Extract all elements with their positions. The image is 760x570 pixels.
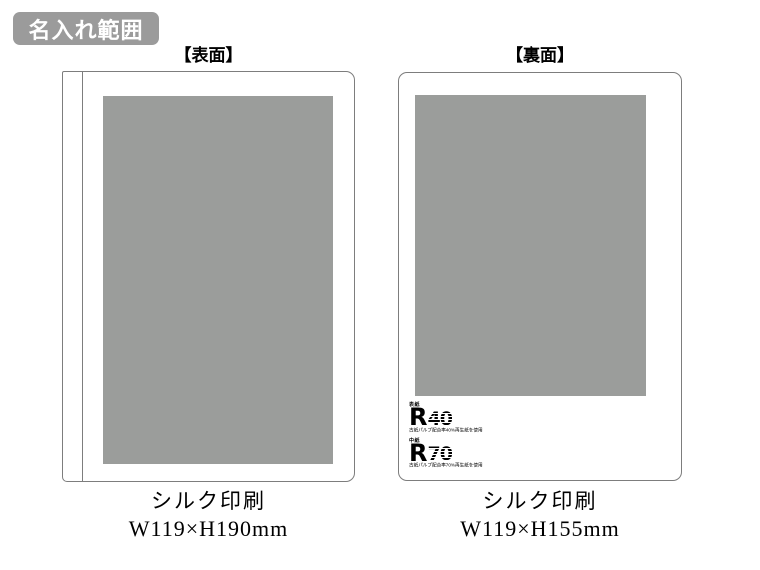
back-print-size: W119×H155mm: [398, 515, 682, 543]
back-print-spec-caption: シルク印刷 W119×H155mm: [398, 487, 682, 543]
spine-divider-line: [82, 72, 83, 481]
back-print-method: シルク印刷: [398, 487, 682, 515]
front-print-size: W119×H190mm: [62, 515, 355, 543]
recycle-r40-mark: 表紙 R40 古紙パルプ配合率40%再生紙を使用: [409, 402, 489, 435]
back-cover-outline: 表紙 R40 古紙パルプ配合率40%再生紙を使用 中紙 R70 古紙パルプ配合率…: [398, 72, 682, 481]
r40-caption: 古紙パルプ配合率40%再生紙を使用: [409, 428, 483, 434]
back-print-area: [415, 95, 646, 396]
name-print-range-diagram: 名入れ範囲 【表面】 【裏面】 表紙 R40 古紙パルプ配合率40%再生紙を使用…: [0, 0, 760, 570]
front-print-spec-caption: シルク印刷 W119×H190mm: [62, 487, 355, 543]
front-cover-outline: [62, 71, 355, 482]
r70-caption: 古紙パルプ配合率70%再生紙を使用: [409, 463, 483, 469]
r70-number: 70: [427, 446, 451, 463]
back-side-heading: 【裏面】: [398, 46, 682, 66]
recycle-r-icon: R: [409, 408, 427, 428]
recycled-paper-marks: 表紙 R40 古紙パルプ配合率40%再生紙を使用 中紙 R70 古紙パルプ配合率…: [409, 402, 489, 473]
recycle-r70-mark: 中紙 R70 古紙パルプ配合率70%再生紙を使用: [409, 438, 489, 471]
name-print-range-badge: 名入れ範囲: [13, 12, 159, 45]
recycle-r-icon: R: [409, 444, 427, 464]
front-print-area: [103, 96, 333, 464]
front-side-heading: 【表面】: [62, 46, 355, 66]
r40-number: 40: [427, 411, 451, 428]
front-print-method: シルク印刷: [62, 487, 355, 515]
